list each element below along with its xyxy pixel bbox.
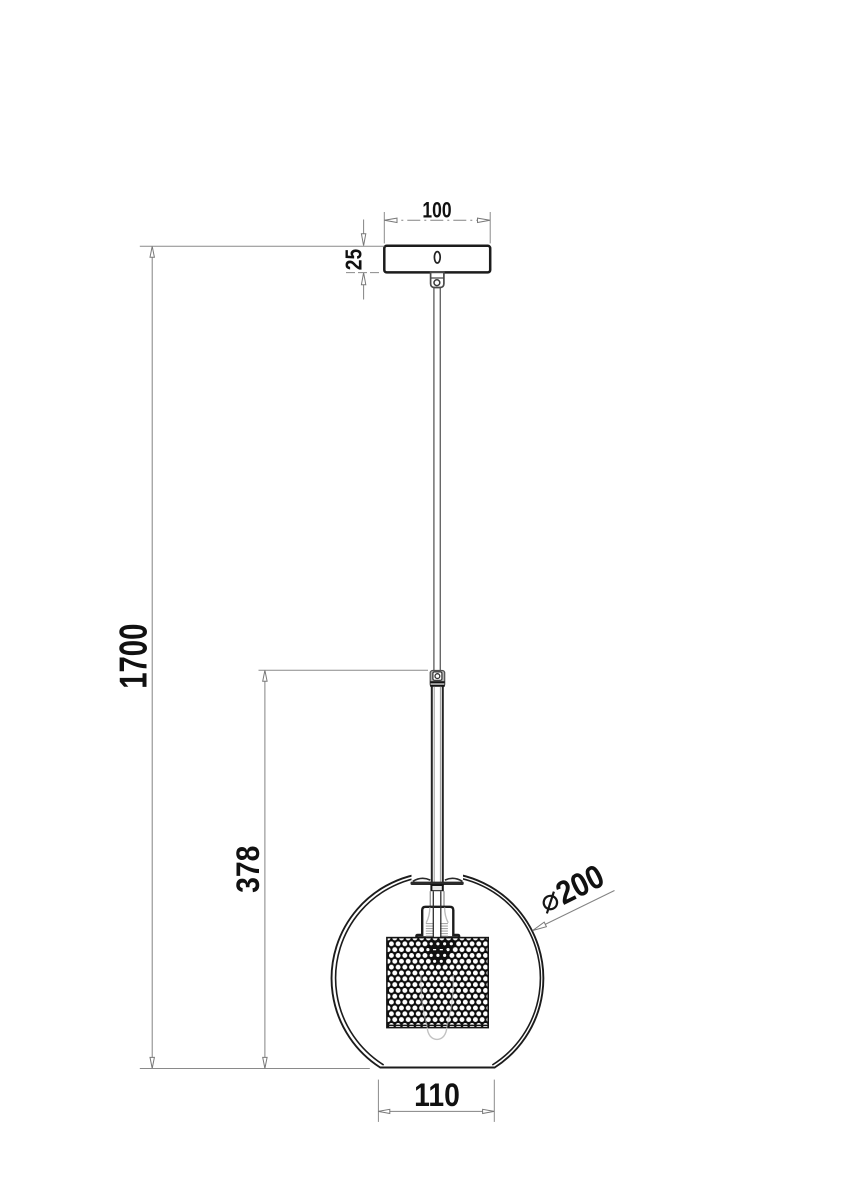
svg-text:378: 378	[231, 846, 266, 893]
svg-text:25: 25	[341, 249, 367, 270]
svg-text:100: 100	[422, 199, 451, 224]
svg-text:110: 110	[414, 1078, 460, 1113]
svg-text:1700: 1700	[113, 624, 156, 689]
